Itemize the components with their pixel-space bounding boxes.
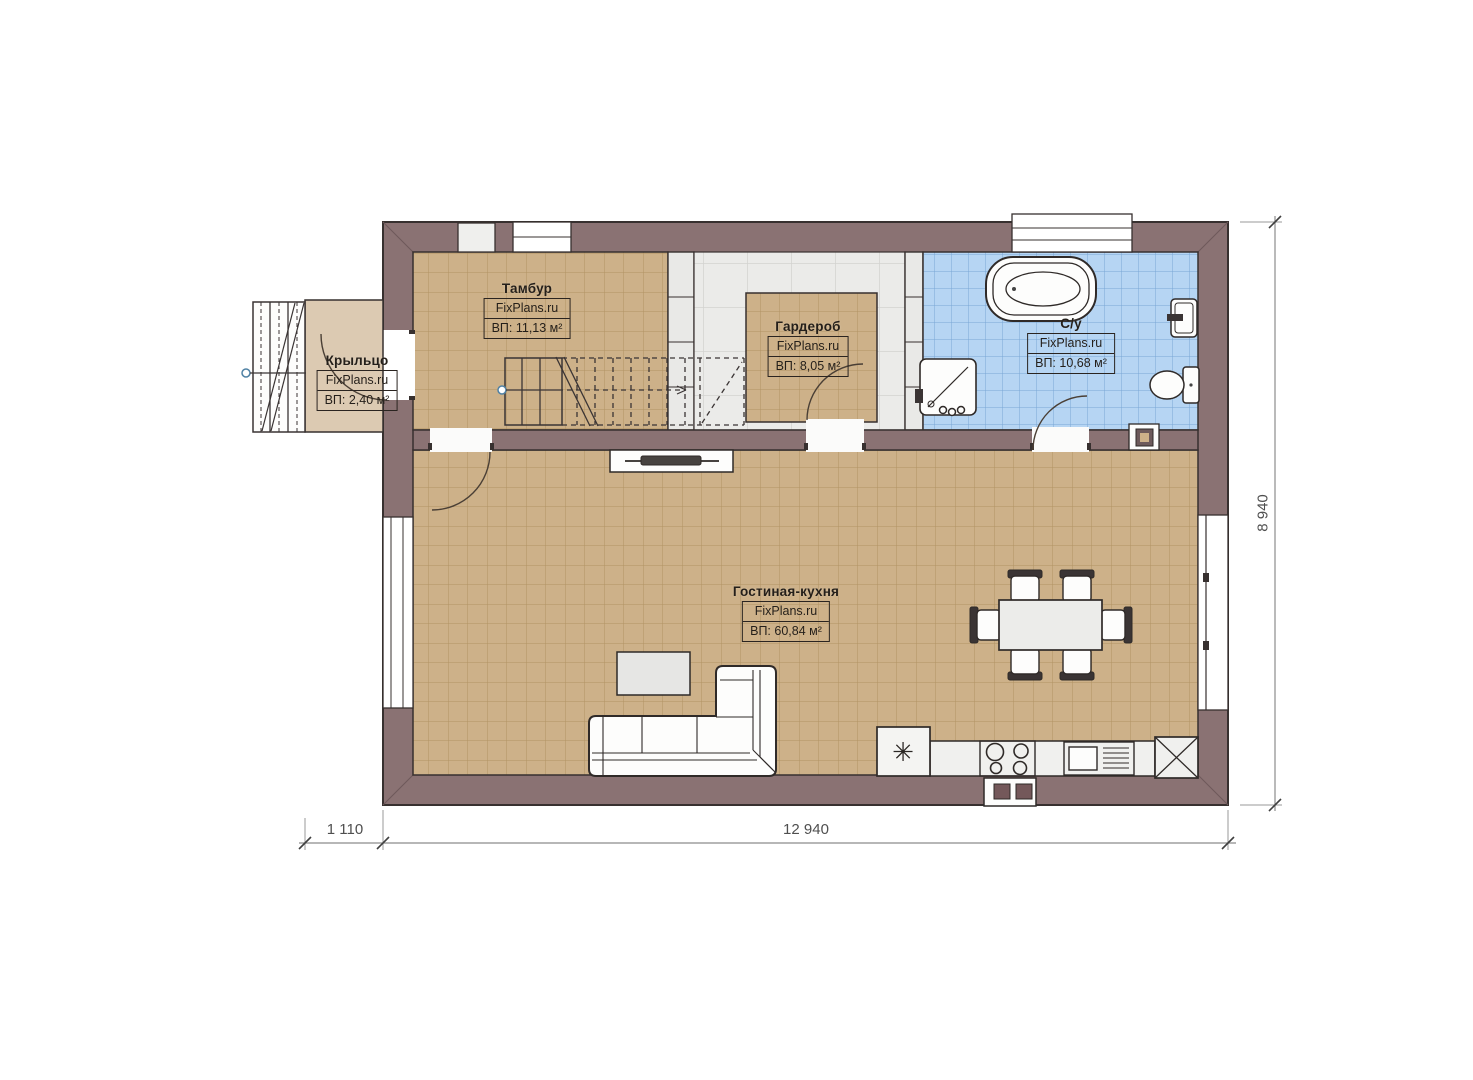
room-label-bathroom: С/у FixPlans.ru ВП: 10,68 м² [1027,316,1115,374]
room-name: С/у [1027,316,1115,331]
dimension-house-width: 12 940 [783,821,829,838]
room-area: ВП: 8,05 м² [769,357,848,376]
room-info-box: FixPlans.ru ВП: 2,40 м² [317,370,398,411]
living-room-right-window [1198,515,1228,710]
room-label-wardrobe: Гардероб FixPlans.ru ВП: 8,05 м² [768,319,849,377]
living-room-left-window [383,517,413,708]
room-area: ВП: 2,40 м² [318,391,397,410]
floor-plan-canvas: ✳ [0,0,1473,1080]
corner-cabinet [1155,737,1198,778]
chair [1060,648,1094,680]
room-name: Крыльцо [317,353,398,368]
washbasin [1167,299,1197,337]
range-vent [984,778,1036,806]
chair [1008,648,1042,680]
room-label-vestibule: Тамбур FixPlans.ru ВП: 11,13 м² [484,281,571,339]
dimension-porch-depth: 1 110 [327,821,363,838]
room-info-box: FixPlans.ru ВП: 11,13 м² [484,298,571,339]
bathtub [986,257,1096,321]
chimney-shaft [458,223,495,252]
room-name: Тамбур [484,281,571,296]
room-info-box: FixPlans.ru ВП: 8,05 м² [768,336,849,377]
dimension-house-depth: 8 940 [1255,494,1272,532]
room-label-living-kitchen: Гостиная-кухня FixPlans.ru ВП: 60,84 м² [733,584,839,642]
room-name: Гостиная-кухня [733,584,839,599]
fridge: ✳ [877,727,930,776]
chair [1101,607,1132,643]
brand-watermark: FixPlans.ru [769,337,848,357]
brand-watermark: FixPlans.ru [485,299,570,319]
fridge-snowflake-icon: ✳ [892,738,914,768]
vestibule-window [513,222,571,252]
room-name: Гардероб [768,319,849,334]
vestibule-partition-wall [668,252,694,430]
chair [1060,570,1094,602]
brand-watermark: FixPlans.ru [1028,334,1114,354]
tv-icon [641,456,701,465]
vent-duct [1129,424,1159,450]
brand-watermark: FixPlans.ru [318,371,397,391]
brand-watermark: FixPlans.ru [743,602,829,622]
shower-tray [915,359,976,416]
chair [1008,570,1042,602]
chair [970,607,1001,643]
room-area: ВП: 60,84 м² [743,622,829,641]
tv-stand [610,450,733,472]
room-info-box: FixPlans.ru ВП: 60,84 м² [742,601,830,642]
bathroom-window [1012,214,1132,252]
dining-table [999,600,1102,650]
room-label-porch: Крыльцо FixPlans.ru ВП: 2,40 м² [317,353,398,411]
room-info-box: FixPlans.ru ВП: 10,68 м² [1027,333,1115,374]
room-area: ВП: 11,13 м² [485,319,570,338]
room-area: ВП: 10,68 м² [1028,354,1114,373]
coffee-table [617,652,690,695]
porch-steps [253,302,305,432]
